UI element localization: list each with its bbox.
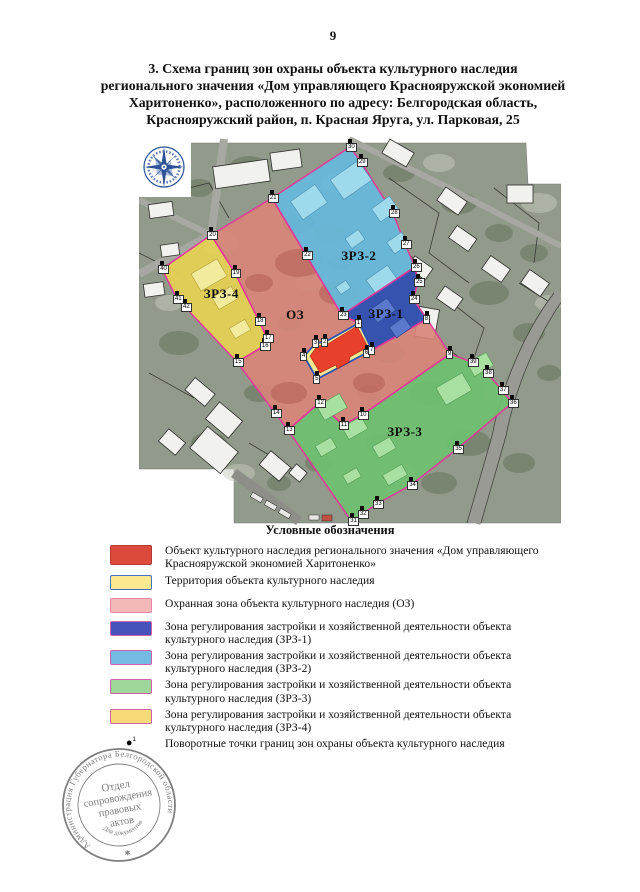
legend-text: Зона регулирования застройки и хозяйстве… <box>165 620 570 646</box>
zrz2-swatch <box>110 650 152 665</box>
zrz4-swatch <box>110 709 152 724</box>
title-line-1: 3. Схема границ зон охраны объекта культ… <box>40 60 626 77</box>
legend-heading: Условные обозначения <box>110 524 550 537</box>
page-title: 3. Схема границ зон охраны объекта культ… <box>40 60 626 128</box>
office-stamp: Администрация Губернатора Белгородской о… <box>32 718 206 892</box>
legend-row-territory: Территория объекта культурного наследия <box>110 574 580 594</box>
legend-row-zrz3: Зона регулирования застройки и хозяйстве… <box>110 678 580 704</box>
map-schematic: 1234567891011121314151617181920212223242… <box>139 137 561 517</box>
title-line-3: Харитоненко», расположенного по адресу: … <box>40 94 626 111</box>
legend-text: Зона регулирования застройки и хозяйстве… <box>165 649 570 675</box>
legend-row-zrz2: Зона регулирования застройки и хозяйстве… <box>110 649 580 675</box>
territory-swatch <box>110 575 152 590</box>
legend-text: Зона регулирования застройки и хозяйстве… <box>165 708 570 734</box>
legend-text: Поворотные точки границ зон охраны объек… <box>165 737 570 750</box>
legend-row-zrz1: Зона регулирования застройки и хозяйстве… <box>110 620 580 646</box>
oz-swatch <box>110 598 152 613</box>
legend-text: Объект культурного наследия региональног… <box>165 544 570 570</box>
compass-rose-icon <box>139 137 191 197</box>
stamp-star: ✱ <box>124 849 131 858</box>
legend-row-oz: Охранная зона объекта культурного наслед… <box>110 597 580 617</box>
legend-text: Территория объекта культурного наследия <box>165 574 570 587</box>
legend-text: Зона регулирования застройки и хозяйстве… <box>165 678 570 704</box>
object-swatch <box>110 545 152 565</box>
page-number: 9 <box>0 28 640 44</box>
zrz3-swatch <box>110 679 152 694</box>
legend-row-object: Объект культурного наследия региональног… <box>110 544 580 570</box>
map-graphics <box>139 137 561 529</box>
zrz1-swatch <box>110 621 152 636</box>
legend-text: Охранная зона объекта культурного наслед… <box>165 597 570 610</box>
title-line-2: регионального значения «Дом управляющего… <box>40 77 626 94</box>
stamp-center-text: Отдел сопровождения правовых актов <box>81 774 158 833</box>
title-line-4: Краснояружский район, п. Красная Яруга, … <box>40 111 626 128</box>
